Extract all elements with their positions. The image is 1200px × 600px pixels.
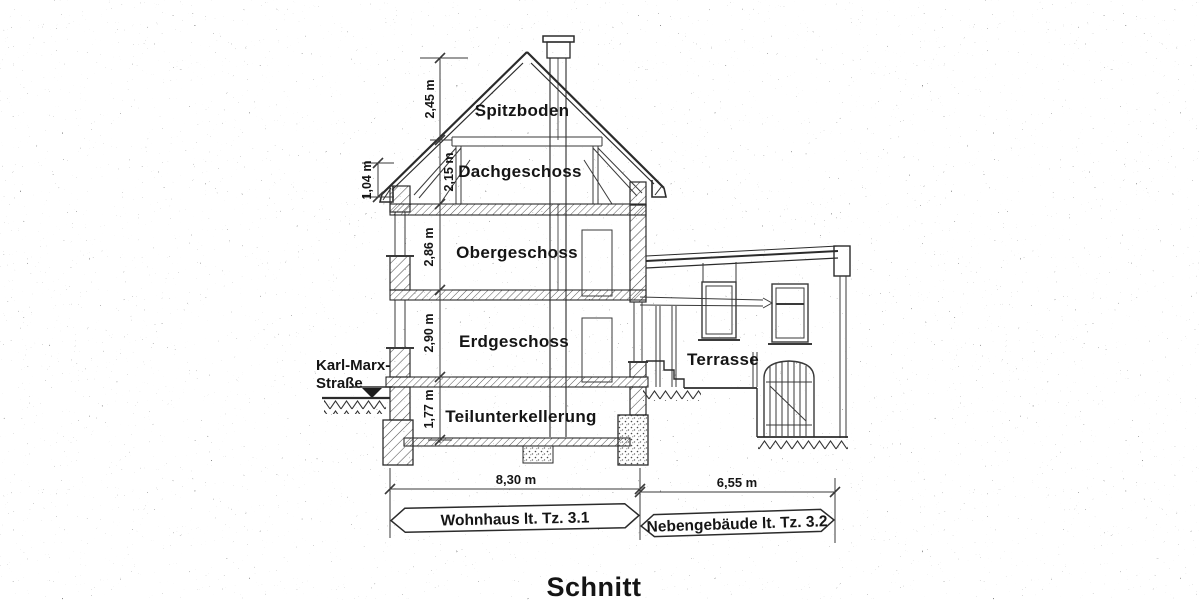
- dim-basement-height: 1,77 m: [422, 390, 436, 429]
- banner-wohnhaus: Wohnhaus lt. Tz. 3.1: [391, 503, 639, 532]
- label-dachgeschoss: Dachgeschoss: [458, 162, 582, 181]
- ground-hatch-annex: [758, 439, 848, 450]
- label-terrasse: Terrasse: [687, 350, 759, 369]
- street-name-line2: Straße: [316, 375, 363, 392]
- label-obergeschoss: Obergeschoss: [456, 243, 578, 262]
- ground-hatch-terrace: [643, 390, 701, 401]
- banner-wohnhaus-label: Wohnhaus lt. Tz. 3.1: [441, 509, 590, 529]
- dim-wohnhaus-width: 8,30 m: [496, 472, 536, 487]
- scanned-section-drawing: Spitzboden Dachgeschoss Obergeschoss Erd…: [0, 0, 1200, 600]
- dim-erdgeschoss-height: 2,90 m: [422, 314, 436, 353]
- section-drawing-svg: Spitzboden Dachgeschoss Obergeschoss Erd…: [0, 0, 1200, 600]
- drawing-title: Schnitt: [547, 572, 642, 600]
- label-spitzboden: Spitzboden: [475, 101, 570, 120]
- ground-hatch-street: [324, 400, 386, 414]
- dim-nebengebaeude-width: 6,55 m: [717, 475, 757, 490]
- street-name-line1: Karl-Marx-: [316, 357, 390, 374]
- label-erdgeschoss: Erdgeschoss: [459, 332, 569, 351]
- dim-knee-wall-height: 1,04 m: [360, 161, 374, 200]
- dim-obergeschoss-height: 2,86 m: [422, 228, 436, 267]
- dim-spitzboden-height: 2,45 m: [423, 80, 437, 119]
- label-teilunterkellerung: Teilunterkellerung: [445, 407, 597, 426]
- dim-dachgeschoss-height: 2,15 m: [442, 153, 456, 192]
